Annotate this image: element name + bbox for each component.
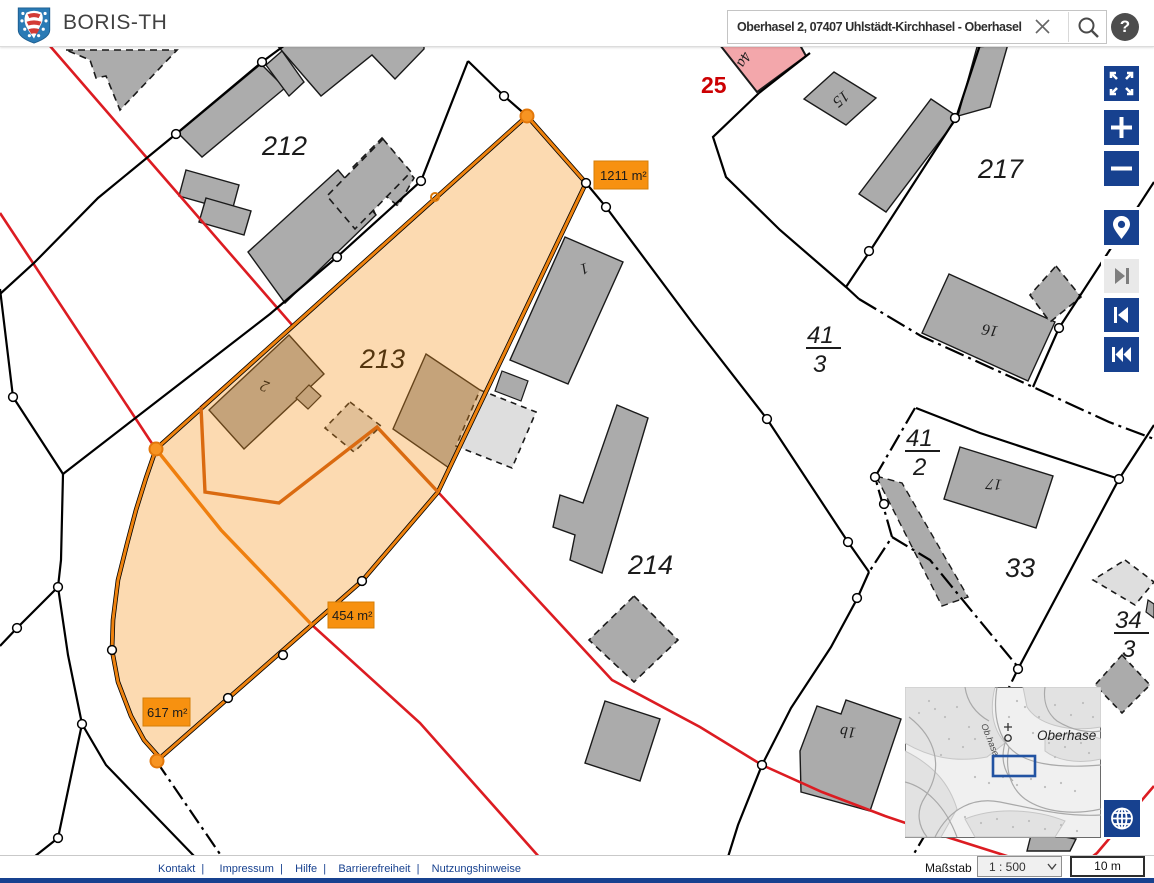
svg-text:3: 3 (1122, 636, 1136, 663)
svg-text:17: 17 (984, 474, 1002, 492)
svg-text:25: 25 (701, 72, 727, 98)
svg-text:41: 41 (807, 322, 834, 349)
svg-text:212: 212 (261, 131, 307, 161)
svg-text:41: 41 (906, 425, 933, 452)
svg-text:Oberhase: Oberhase (1037, 728, 1096, 743)
svg-text:16: 16 (981, 320, 1000, 340)
svg-text:617 m²: 617 m² (147, 705, 188, 720)
svg-text:217: 217 (977, 154, 1024, 184)
svg-text:1211 m²: 1211 m² (600, 168, 647, 183)
svg-text:213: 213 (359, 344, 405, 374)
svg-text:33: 33 (1005, 553, 1035, 583)
svg-text:1b: 1b (839, 723, 856, 741)
svg-text:2: 2 (912, 454, 926, 481)
svg-text:3: 3 (813, 351, 827, 378)
svg-text:214: 214 (627, 550, 673, 580)
svg-text:454 m²: 454 m² (332, 608, 373, 623)
svg-text:34: 34 (1115, 607, 1142, 634)
